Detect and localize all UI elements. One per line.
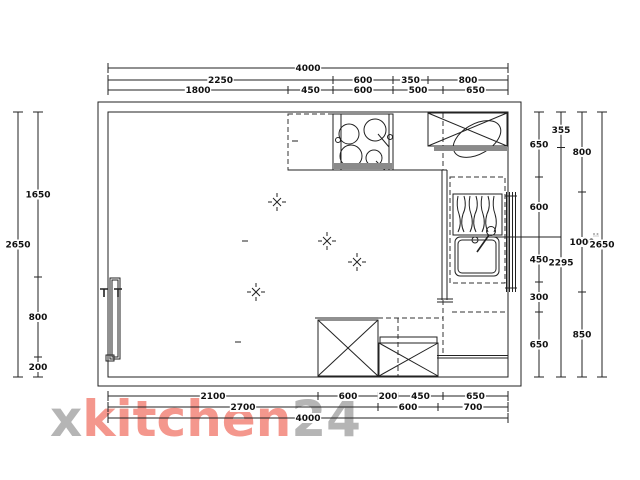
- dim-label: 1800: [185, 86, 210, 96]
- reference-dashes: [235, 241, 248, 342]
- dim-label: 355: [552, 126, 571, 136]
- dim-label: 4000: [295, 64, 320, 74]
- ceiling-light-icon: [268, 193, 286, 211]
- dim-label: 800: [459, 76, 478, 86]
- floorplan-drawing: 4000225060035080018004506005006502100600…: [0, 0, 640, 480]
- dim-label: 600: [354, 86, 373, 96]
- cooktop-front-strip: [334, 163, 392, 169]
- dim-label: 600: [339, 392, 358, 402]
- wall-cabinet-dashed: [288, 114, 333, 170]
- door: [100, 278, 122, 361]
- dim-label: 2295: [548, 258, 573, 268]
- unit-basin-oval: [447, 113, 507, 165]
- counter-bottom-right: [437, 300, 508, 358]
- ceiling-light-icon: [348, 253, 366, 271]
- dim-label: 850: [573, 331, 592, 341]
- dim-label: 200: [379, 392, 398, 402]
- dim-label: 450: [301, 86, 320, 96]
- dim-label: 650: [466, 392, 485, 402]
- dim-label: 2650: [5, 241, 30, 251]
- floorplan-image: xkitchen24: [0, 0, 640, 480]
- base-unit-crossed-right: [378, 318, 443, 376]
- unit-front-strip: [434, 146, 507, 151]
- dim-label: 800: [29, 313, 48, 323]
- ceiling-light-icon: [318, 232, 336, 250]
- dim-label: 350: [401, 76, 420, 86]
- cooktop: [333, 114, 393, 170]
- dim-label: 650: [530, 141, 549, 151]
- dim-label: 300: [530, 293, 549, 303]
- dim-label: 4000: [295, 414, 320, 424]
- radiator: [505, 192, 517, 292]
- tiny-artifact-mark: [593, 233, 599, 236]
- dim-label: 800: [573, 148, 592, 158]
- dim-label: 700: [464, 403, 483, 413]
- dim-label: 1650: [25, 191, 50, 201]
- dim-label: 600: [354, 76, 373, 86]
- door-handle-icon: [100, 289, 108, 297]
- dim-label: 450: [530, 256, 549, 266]
- worktop-panel: [380, 337, 437, 343]
- dim-label: 450: [411, 392, 430, 402]
- dim-label: 2650: [589, 241, 614, 251]
- dim-label: 200: [29, 363, 48, 373]
- ceiling-light-icon: [247, 283, 265, 301]
- sink-unit: [437, 170, 505, 302]
- base-unit-crossed-left: [315, 318, 378, 376]
- dim-label: 2250: [208, 76, 233, 86]
- door-handle-icon: [114, 289, 122, 297]
- dim-label: 2700: [230, 403, 255, 413]
- dim-label: 650: [466, 86, 485, 96]
- dim-label: 2100: [200, 392, 225, 402]
- dim-label: 600: [530, 203, 549, 213]
- dimension-chains: 4000225060035080018004506005006502100600…: [5, 63, 615, 424]
- dim-label: 650: [530, 341, 549, 351]
- dim-label: 500: [409, 86, 428, 96]
- tall-unit-crossed: [428, 113, 507, 165]
- dim-label: 600: [399, 403, 418, 413]
